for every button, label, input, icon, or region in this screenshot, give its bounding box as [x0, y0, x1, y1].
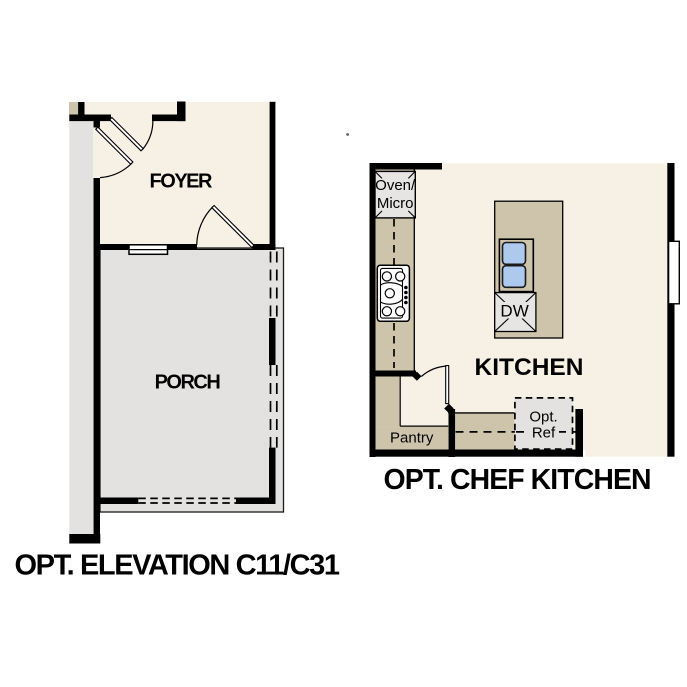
svg-text:FOYER: FOYER: [150, 171, 214, 193]
svg-text:Pantry: Pantry: [390, 430, 434, 447]
svg-text:Opt.: Opt.: [529, 409, 557, 426]
svg-text:OPT. ELEVATION C11/C31: OPT. ELEVATION C11/C31: [15, 550, 341, 582]
svg-text:KITCHEN: KITCHEN: [475, 354, 584, 381]
svg-text:Oven/: Oven/: [375, 177, 416, 194]
svg-text:OPT. CHEF KITCHEN: OPT. CHEF KITCHEN: [384, 464, 652, 496]
svg-text:Micro: Micro: [377, 195, 414, 212]
svg-text:Ref: Ref: [532, 425, 556, 442]
svg-text:PORCH: PORCH: [155, 371, 221, 393]
svg-text:DW: DW: [500, 301, 528, 320]
